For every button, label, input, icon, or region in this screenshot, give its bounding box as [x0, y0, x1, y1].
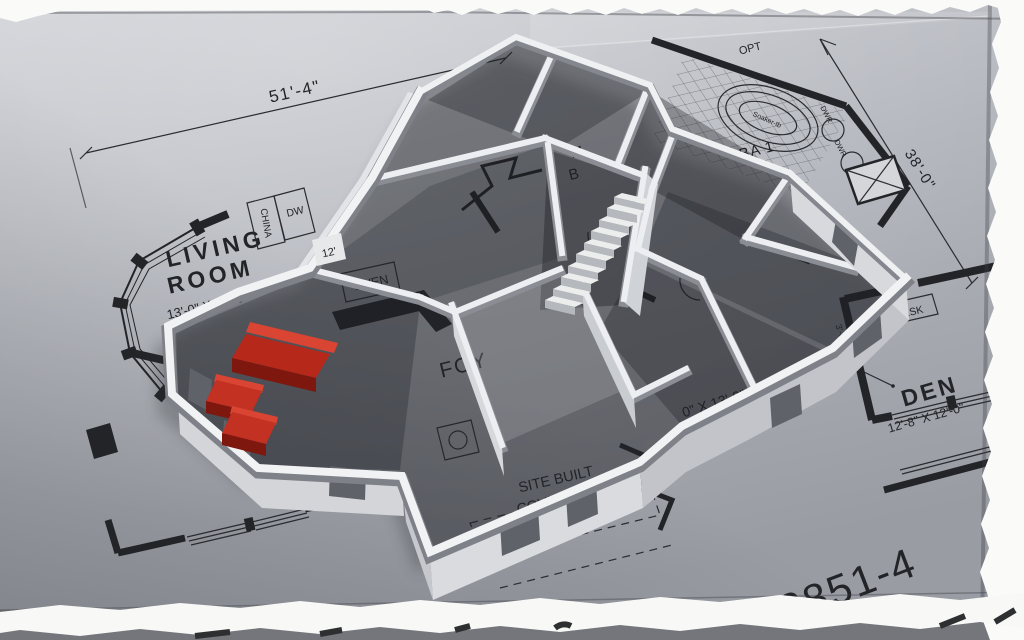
blueprint-scene: 51'-4" 38'-0" LIVING ROOM 13'-0" X 13'-3…	[0, 0, 1024, 640]
blueprint-render-image: 51'-4" 38'-0" LIVING ROOM 13'-0" X 13'-3…	[0, 0, 1024, 640]
